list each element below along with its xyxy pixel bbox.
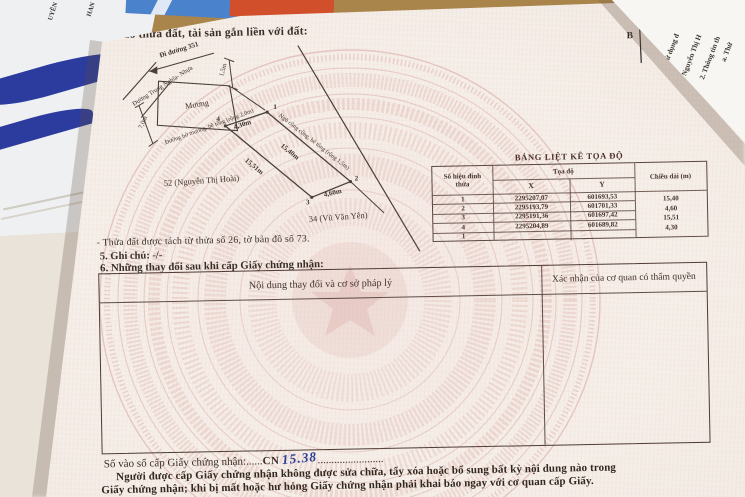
cell-x: 2295204,89 xyxy=(493,221,570,232)
certificate-page: 4. Sơ đồ thửa đất, tài sản gắn liền với … xyxy=(0,0,745,497)
entry-handwritten-number: 15.38 xyxy=(281,449,318,468)
coordinate-table: BẢNG LIỆT KÊ TỌA ĐỘ Số hiệu đỉnh thửa T xyxy=(431,149,709,242)
entry-cn: CN xyxy=(262,455,279,467)
folded-text-line: 2. Thông tin th xyxy=(698,35,722,80)
item-stripe xyxy=(151,0,176,15)
book-text-fragment: HAN xyxy=(86,2,97,18)
changes-col-left-header: Nội dung thay đổi và cơ sở pháp lý xyxy=(99,266,541,302)
changes-table: Nội dung thay đổi và cơ sở pháp lý Xác n… xyxy=(98,262,710,455)
vertex-label-4: 4 xyxy=(216,115,220,123)
col-header-vertex: Số hiệu đỉnh thửa xyxy=(432,166,493,195)
book-text-fragment: UYỄN xyxy=(47,2,59,22)
vertex-label-1: 1 xyxy=(273,103,277,111)
cell-y: 601689,82 xyxy=(570,219,635,230)
col-header-x: X xyxy=(492,178,569,193)
vertex-label-3: 3 xyxy=(306,198,310,206)
changes-col-right-header: Xác nhận của cơ quan có thẩm quyền xyxy=(541,263,707,294)
vertex-label-2: 2 xyxy=(355,174,359,182)
col-header-length: Chiều dài (m) xyxy=(634,162,707,191)
plot-diagram xyxy=(91,34,445,256)
col-header-y: Y xyxy=(569,177,634,192)
entry-trailer: ........................ xyxy=(317,453,383,466)
page-content: 4. Sơ đồ thửa đất, tài sản gắn liền với … xyxy=(0,0,745,497)
folded-text-line: a. Thử xyxy=(720,41,735,63)
photo-canvas: UYỄN HAN xyxy=(0,0,745,497)
cell-vertex: 1 xyxy=(433,231,493,242)
coordinate-table-grid: Số hiệu đỉnh thửa Tọa độ X Y Chiều dài (… xyxy=(431,161,708,242)
cell-length: 4,30 xyxy=(635,222,707,233)
